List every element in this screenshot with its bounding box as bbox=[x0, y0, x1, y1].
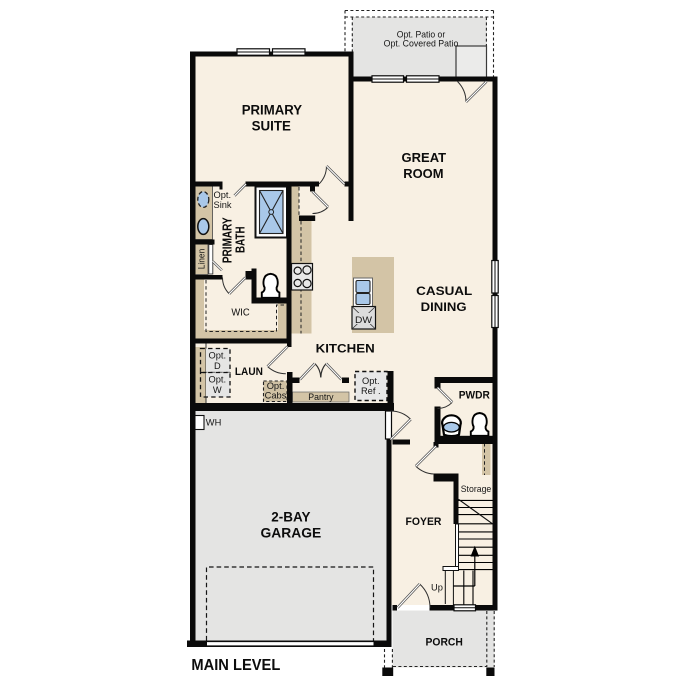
svg-text:KITCHEN: KITCHEN bbox=[316, 341, 375, 355]
svg-text:2-BAY: 2-BAY bbox=[271, 509, 311, 525]
svg-text:Sink: Sink bbox=[214, 200, 232, 210]
svg-text:Cabs: Cabs bbox=[265, 391, 287, 401]
svg-text:Storage: Storage bbox=[461, 484, 492, 494]
svg-text:DINING: DINING bbox=[421, 300, 467, 314]
svg-text:WIC: WIC bbox=[231, 308, 249, 319]
svg-text:D: D bbox=[214, 361, 221, 371]
svg-text:GREAT: GREAT bbox=[402, 150, 447, 165]
svg-text:PRIMARY: PRIMARY bbox=[220, 217, 234, 263]
svg-text:Up: Up bbox=[431, 582, 443, 592]
svg-text:LAUN: LAUN bbox=[235, 366, 263, 378]
svg-text:FOYER: FOYER bbox=[406, 516, 442, 528]
svg-text:Opt.: Opt. bbox=[209, 374, 227, 384]
svg-text:BATH: BATH bbox=[233, 226, 247, 253]
svg-text:Linen: Linen bbox=[197, 249, 207, 270]
svg-text:DW: DW bbox=[355, 315, 372, 325]
svg-text:PORCH: PORCH bbox=[426, 636, 463, 648]
svg-text:WH: WH bbox=[206, 418, 222, 428]
svg-text:PRIMARY: PRIMARY bbox=[242, 103, 302, 118]
svg-text:SUITE: SUITE bbox=[252, 118, 291, 133]
svg-text:Opt.: Opt. bbox=[267, 381, 285, 391]
svg-text:CASUAL: CASUAL bbox=[416, 284, 472, 298]
svg-text:Opt.: Opt. bbox=[209, 350, 227, 360]
svg-text:PWDR: PWDR bbox=[459, 390, 490, 402]
svg-text:W: W bbox=[213, 385, 222, 395]
svg-text:MAIN LEVEL: MAIN LEVEL bbox=[191, 657, 280, 674]
svg-text:ROOM: ROOM bbox=[403, 166, 443, 181]
svg-text:Pantry: Pantry bbox=[308, 392, 334, 402]
svg-text:Opt.: Opt. bbox=[362, 376, 380, 386]
svg-text:Opt.: Opt. bbox=[214, 190, 232, 200]
svg-text:Opt. Covered Patio: Opt. Covered Patio bbox=[384, 38, 459, 48]
svg-text:GARAGE: GARAGE bbox=[261, 525, 322, 541]
svg-text:Ref .: Ref . bbox=[361, 386, 381, 396]
